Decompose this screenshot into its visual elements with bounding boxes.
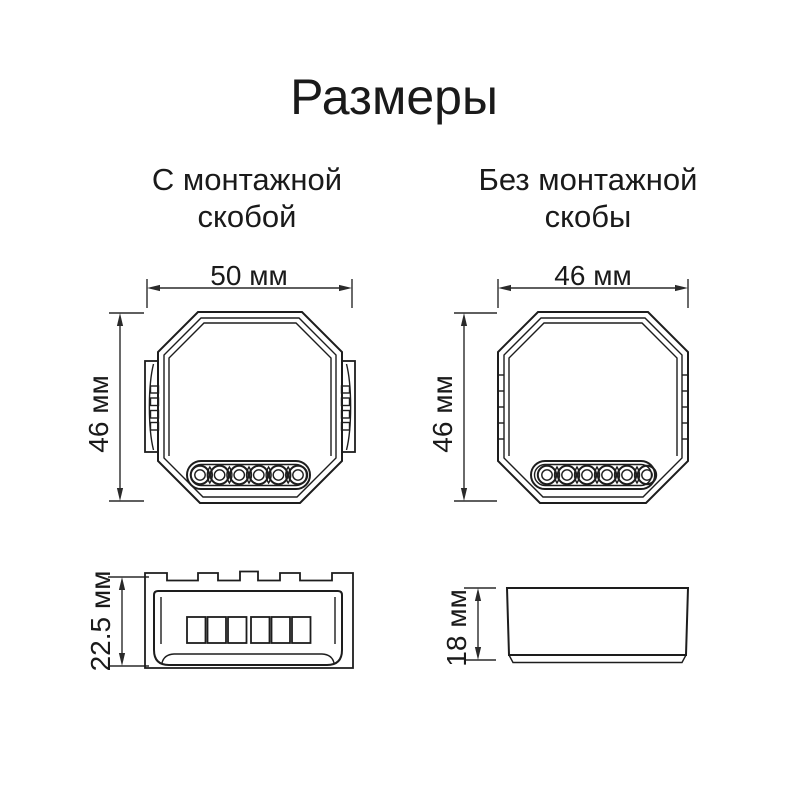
terminal-hole <box>210 466 228 484</box>
arrow-head <box>461 488 467 501</box>
front-view-without-bracket: 46 мм 46 мм <box>427 260 688 503</box>
arrow-head <box>117 488 123 501</box>
terminal-opening <box>187 617 206 643</box>
height-label: 46 мм <box>83 375 114 452</box>
width-dimension: 50 мм <box>147 260 352 308</box>
depth-label: 18 мм <box>441 589 472 666</box>
arrow-head <box>119 653 125 666</box>
terminal-screw <box>214 470 224 480</box>
arrow-head <box>461 313 467 326</box>
terminal-block <box>531 461 656 489</box>
terminal-hole <box>191 466 209 484</box>
side-view-without-bracket: 18 мм <box>441 588 688 667</box>
terminal-hole <box>638 466 656 484</box>
terminal-screw <box>542 470 552 480</box>
height-dimension: 46 мм <box>427 313 497 501</box>
right-column-heading-line1: Без монтажной <box>479 162 698 197</box>
terminal-screw <box>273 470 283 480</box>
side-view-with-bracket: 22.5 мм <box>85 571 353 672</box>
page-title: Размеры <box>290 69 498 125</box>
mounting-tab-right <box>342 361 356 452</box>
terminal-screw <box>234 470 244 480</box>
terminal-hole <box>598 466 616 484</box>
depth-dimension: 18 мм <box>441 588 496 667</box>
terminal-screw <box>642 470 652 480</box>
height-label: 46 мм <box>427 375 458 452</box>
terminal-block <box>187 461 310 489</box>
case-outline <box>507 588 688 655</box>
terminal-hole <box>618 466 636 484</box>
terminal-screw <box>602 470 612 480</box>
mounting-tab-left <box>145 361 159 452</box>
dimensions-diagram-page: Размеры С монтажной скобой Без монтажной… <box>0 0 800 800</box>
terminal-screw <box>582 470 592 480</box>
depth-dimension: 22.5 мм <box>85 571 149 672</box>
terminal-screw <box>622 470 632 480</box>
terminal-hole <box>578 466 596 484</box>
arrow-head <box>119 577 125 590</box>
terminal-openings <box>187 617 311 643</box>
terminal-hole <box>558 466 576 484</box>
arrow-head <box>147 285 160 291</box>
terminal-screw <box>562 470 572 480</box>
dimensions-diagram: Размеры С монтажной скобой Без монтажной… <box>0 0 800 800</box>
terminal-opening <box>292 617 311 643</box>
arrow-head <box>675 285 688 291</box>
arrow-head <box>475 588 481 601</box>
terminal-opening <box>228 617 247 643</box>
left-column-heading-line2: скобой <box>198 199 297 234</box>
terminal-hole <box>230 466 248 484</box>
tab-spring-curve <box>149 364 153 450</box>
width-dimension: 46 мм <box>498 260 688 308</box>
device-outline-innermost <box>509 323 677 456</box>
terminal-hole <box>538 466 556 484</box>
device-outline-innermost <box>169 323 331 456</box>
arrow-head <box>339 285 352 291</box>
case-bottom-lip <box>162 654 334 663</box>
width-label: 46 мм <box>554 260 631 291</box>
height-dimension: 46 мм <box>83 313 144 501</box>
terminal-hole <box>250 466 268 484</box>
terminal-opening <box>251 617 270 643</box>
case-bottom-lip <box>509 655 686 663</box>
terminal-opening <box>272 617 291 643</box>
arrow-head <box>498 285 511 291</box>
terminal-screw <box>195 470 205 480</box>
front-view-with-bracket: 50 мм 46 мм <box>83 260 355 503</box>
tab-spring-curve <box>347 364 351 450</box>
terminal-hole <box>289 466 307 484</box>
terminal-screw <box>293 470 303 480</box>
width-label: 50 мм <box>210 260 287 291</box>
terminal-hole <box>269 466 287 484</box>
arrow-head <box>117 313 123 326</box>
left-column-heading-line1: С монтажной <box>152 162 342 197</box>
depth-label: 22.5 мм <box>85 571 116 672</box>
right-column-heading-line2: скобы <box>545 199 632 234</box>
terminal-opening <box>208 617 227 643</box>
arrow-head <box>475 647 481 660</box>
terminal-screw <box>254 470 264 480</box>
